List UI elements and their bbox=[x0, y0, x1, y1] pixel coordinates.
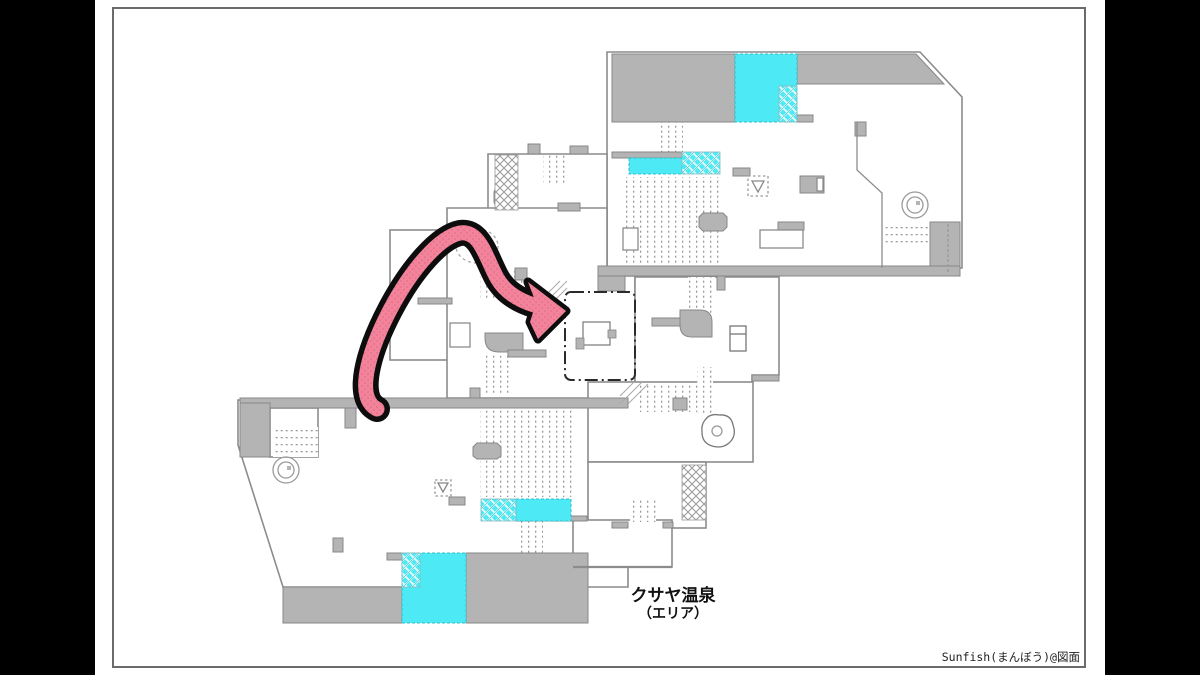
floor-plan-canvas: クサヤ温泉 （エリア） Sunfish(まんぼう)@図面 bbox=[0, 0, 1200, 675]
bathtub-octagon-icon bbox=[473, 443, 501, 459]
screenshot-stage: クサヤ温泉 （エリア） Sunfish(まんぼう)@図面 bbox=[0, 0, 1200, 675]
pool-lower-small bbox=[516, 499, 571, 521]
cabinet-icon bbox=[730, 326, 746, 351]
map-subtitle: （エリア） bbox=[638, 606, 708, 622]
bed-icon bbox=[583, 322, 610, 345]
map-title: クサヤ温泉 bbox=[631, 585, 717, 606]
lower-left-roof-block bbox=[283, 587, 402, 623]
pool-upper-small bbox=[629, 158, 682, 174]
middle-lower-dividing-band bbox=[240, 398, 628, 408]
credit-text: Sunfish(まんぼう)@図面 bbox=[942, 650, 1080, 664]
lower-roof-block bbox=[466, 553, 588, 623]
upper-lower-dividing-band bbox=[598, 266, 960, 276]
rock-icon bbox=[702, 415, 735, 447]
bathtub-octagon-icon bbox=[699, 213, 727, 231]
